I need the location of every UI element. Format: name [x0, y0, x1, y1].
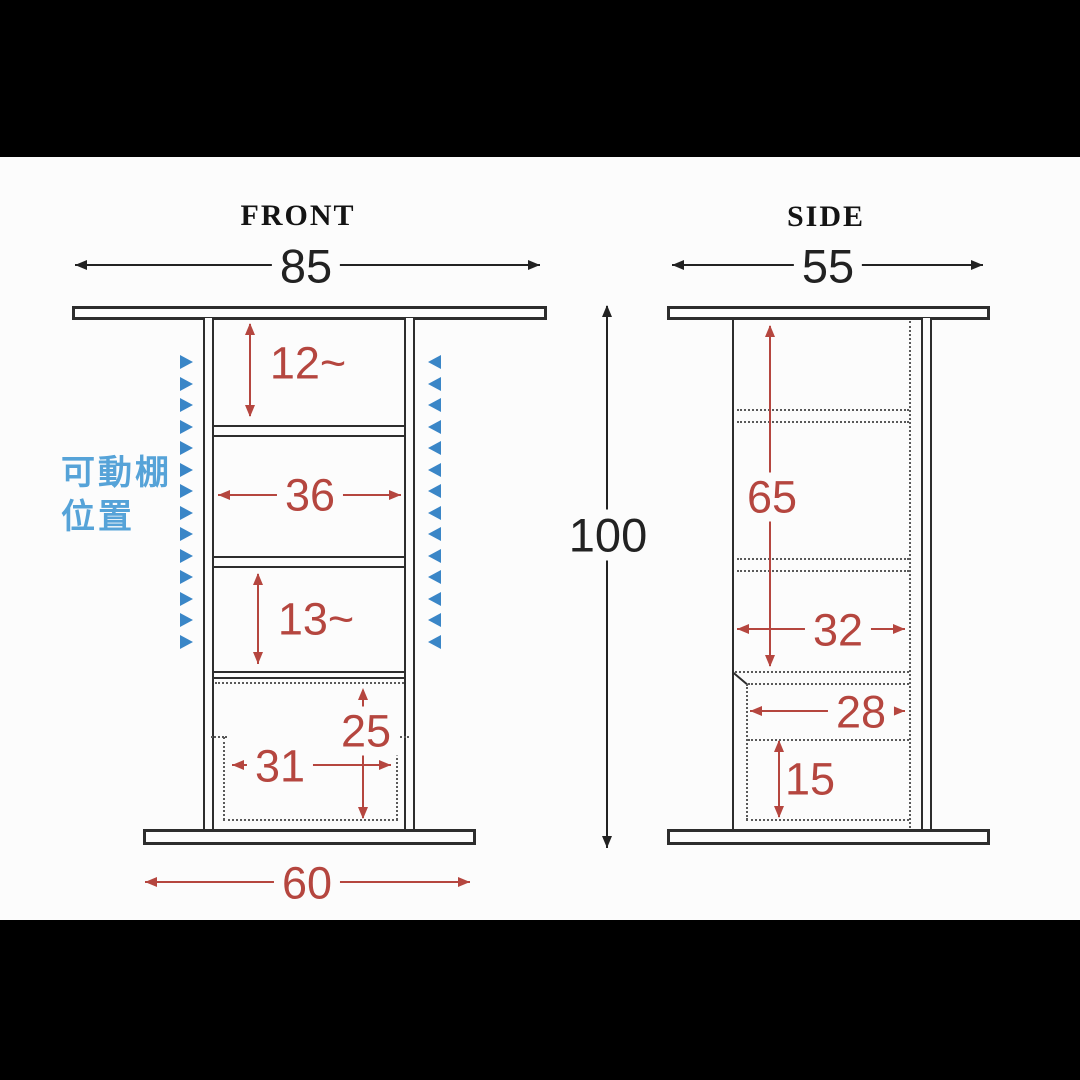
front-view-title: FRONT: [241, 199, 356, 233]
arrowhead-left-icon: [218, 490, 230, 500]
shelf-pin-triangle-icon: [428, 570, 441, 584]
shelf-pin-triangle-icon: [180, 613, 193, 627]
arrowhead-down-icon: [774, 806, 784, 818]
shelf-pin-triangle-icon: [428, 592, 441, 606]
movable-shelf-label-line2: 位置: [61, 496, 172, 540]
movable-shelf-label-line1: 可動棚: [61, 452, 172, 496]
arrowhead-right-icon: [893, 706, 905, 716]
side-width-value: 55: [794, 241, 862, 292]
front-left-side-panel: [203, 318, 214, 831]
arrowhead-down-icon: [602, 836, 612, 848]
shelf-pin-triangle-icon: [180, 420, 193, 434]
shelf-pin-triangle-icon: [428, 398, 441, 412]
arrowhead-left-icon: [672, 260, 684, 270]
side-lower-depth-value: 28: [828, 688, 894, 737]
shelf-pin-triangle-icon: [180, 377, 193, 391]
side-front-edge-line: [732, 318, 734, 831]
arrowhead-right-icon: [379, 760, 391, 770]
arrowhead-down-icon: [245, 405, 255, 417]
shelf-pin-triangle-icon: [428, 635, 441, 649]
front-clearance-height-value: 25: [333, 707, 399, 756]
side-back-panel: [921, 318, 932, 831]
shelf-pin-triangle-icon: [428, 463, 441, 477]
arrowhead-down-icon: [358, 807, 368, 819]
front-clearance-width-value: 31: [247, 742, 313, 791]
side-fixed-shelf-dotted-bottom: [748, 683, 909, 685]
dimension-line: [249, 324, 251, 416]
overall-height-value: 100: [561, 510, 655, 561]
arrowhead-left-icon: [75, 260, 87, 270]
side-lower-height-value: 15: [785, 757, 835, 802]
shelf-pin-triangle-icon: [428, 484, 441, 498]
front-shelf-width-value: 36: [277, 471, 343, 520]
arrowhead-right-icon: [893, 624, 905, 634]
front-top-panel: [72, 306, 547, 320]
shelf-pin-triangle-icon: [428, 613, 441, 627]
shelf-pin-triangle-icon: [428, 527, 441, 541]
shelf-pin-triangle-icon: [180, 441, 193, 455]
front-right-side-panel: [404, 318, 415, 831]
front-movable-shelf-2: [214, 556, 404, 568]
shelf-pin-triangle-icon: [180, 592, 193, 606]
shelf-pin-triangle-icon: [428, 377, 441, 391]
side-upper-depth-value: 32: [805, 606, 871, 655]
front-base-panel: [143, 829, 476, 845]
side-top-panel: [667, 306, 990, 320]
shelf-pin-triangle-icon: [428, 441, 441, 455]
front-dotted-edge-bottom: [223, 819, 398, 821]
side-view-title: SIDE: [787, 200, 865, 234]
side-shelf2-dotted-bottom: [737, 570, 909, 572]
arrowhead-down-icon: [765, 655, 775, 667]
arrowhead-up-icon: [245, 323, 255, 335]
front-movable-shelf-1: [214, 425, 404, 437]
shelf-pin-triangle-icon: [428, 355, 441, 369]
arrowhead-right-icon: [458, 877, 470, 887]
shelf-pin-triangle-icon: [428, 420, 441, 434]
arrowhead-up-icon: [602, 305, 612, 317]
arrowhead-left-icon: [750, 706, 762, 716]
side-lower-dotted-edge-left: [746, 684, 748, 820]
letterbox-bottom: [0, 920, 1080, 1080]
front-middle-section-value: 13~: [278, 597, 354, 642]
front-fixed-shelf: [214, 671, 404, 679]
arrowhead-left-icon: [232, 760, 244, 770]
front-base-width-value: 60: [274, 859, 340, 908]
shelf-pin-triangle-icon: [180, 355, 193, 369]
side-shelf1-dotted-bottom: [737, 421, 909, 423]
movable-shelf-position-label: 可動棚 位置: [61, 452, 172, 539]
shelf-pin-triangle-icon: [180, 635, 193, 649]
arrowhead-up-icon: [358, 688, 368, 700]
front-top-section-value: 12~: [270, 341, 346, 386]
front-dotted-edge-left: [223, 737, 225, 820]
arrowhead-right-icon: [971, 260, 983, 270]
side-fixed-shelf-dotted-top: [735, 671, 909, 673]
arrowhead-left-icon: [145, 877, 157, 887]
arrowhead-right-icon: [389, 490, 401, 500]
side-lower-dotted-divider: [748, 739, 909, 741]
side-shelf1-dotted-top: [737, 409, 909, 411]
side-interior-height-value: 65: [739, 473, 805, 522]
letterbox-top: [0, 0, 1080, 157]
shelf-pin-triangle-icon: [180, 398, 193, 412]
arrowhead-right-icon: [528, 260, 540, 270]
arrowhead-left-icon: [737, 624, 749, 634]
side-dotted-back-line: [909, 321, 911, 828]
dimension-diagram: FRONT 85 12~: [0, 0, 1080, 1080]
shelf-pin-triangle-icon: [180, 527, 193, 541]
shelf-pin-triangle-icon: [428, 549, 441, 563]
side-lower-dotted-bottom: [746, 819, 909, 821]
side-base-panel: [667, 829, 990, 845]
side-shelf2-dotted-top: [737, 558, 909, 560]
shelf-pin-triangle-icon: [180, 484, 193, 498]
shelf-pin-triangle-icon: [180, 570, 193, 584]
dimension-line: [257, 574, 259, 664]
dimension-line: [606, 306, 608, 848]
shelf-pin-triangle-icon: [180, 549, 193, 563]
shelf-pin-triangle-icon: [428, 506, 441, 520]
shelf-pin-triangle-icon: [180, 506, 193, 520]
front-dotted-line-under-shelf: [215, 682, 404, 684]
front-width-value: 85: [272, 241, 340, 292]
arrowhead-down-icon: [253, 652, 263, 664]
arrowhead-up-icon: [253, 573, 263, 585]
arrowhead-up-icon: [774, 740, 784, 752]
arrowhead-up-icon: [765, 325, 775, 337]
shelf-pin-triangle-icon: [180, 463, 193, 477]
